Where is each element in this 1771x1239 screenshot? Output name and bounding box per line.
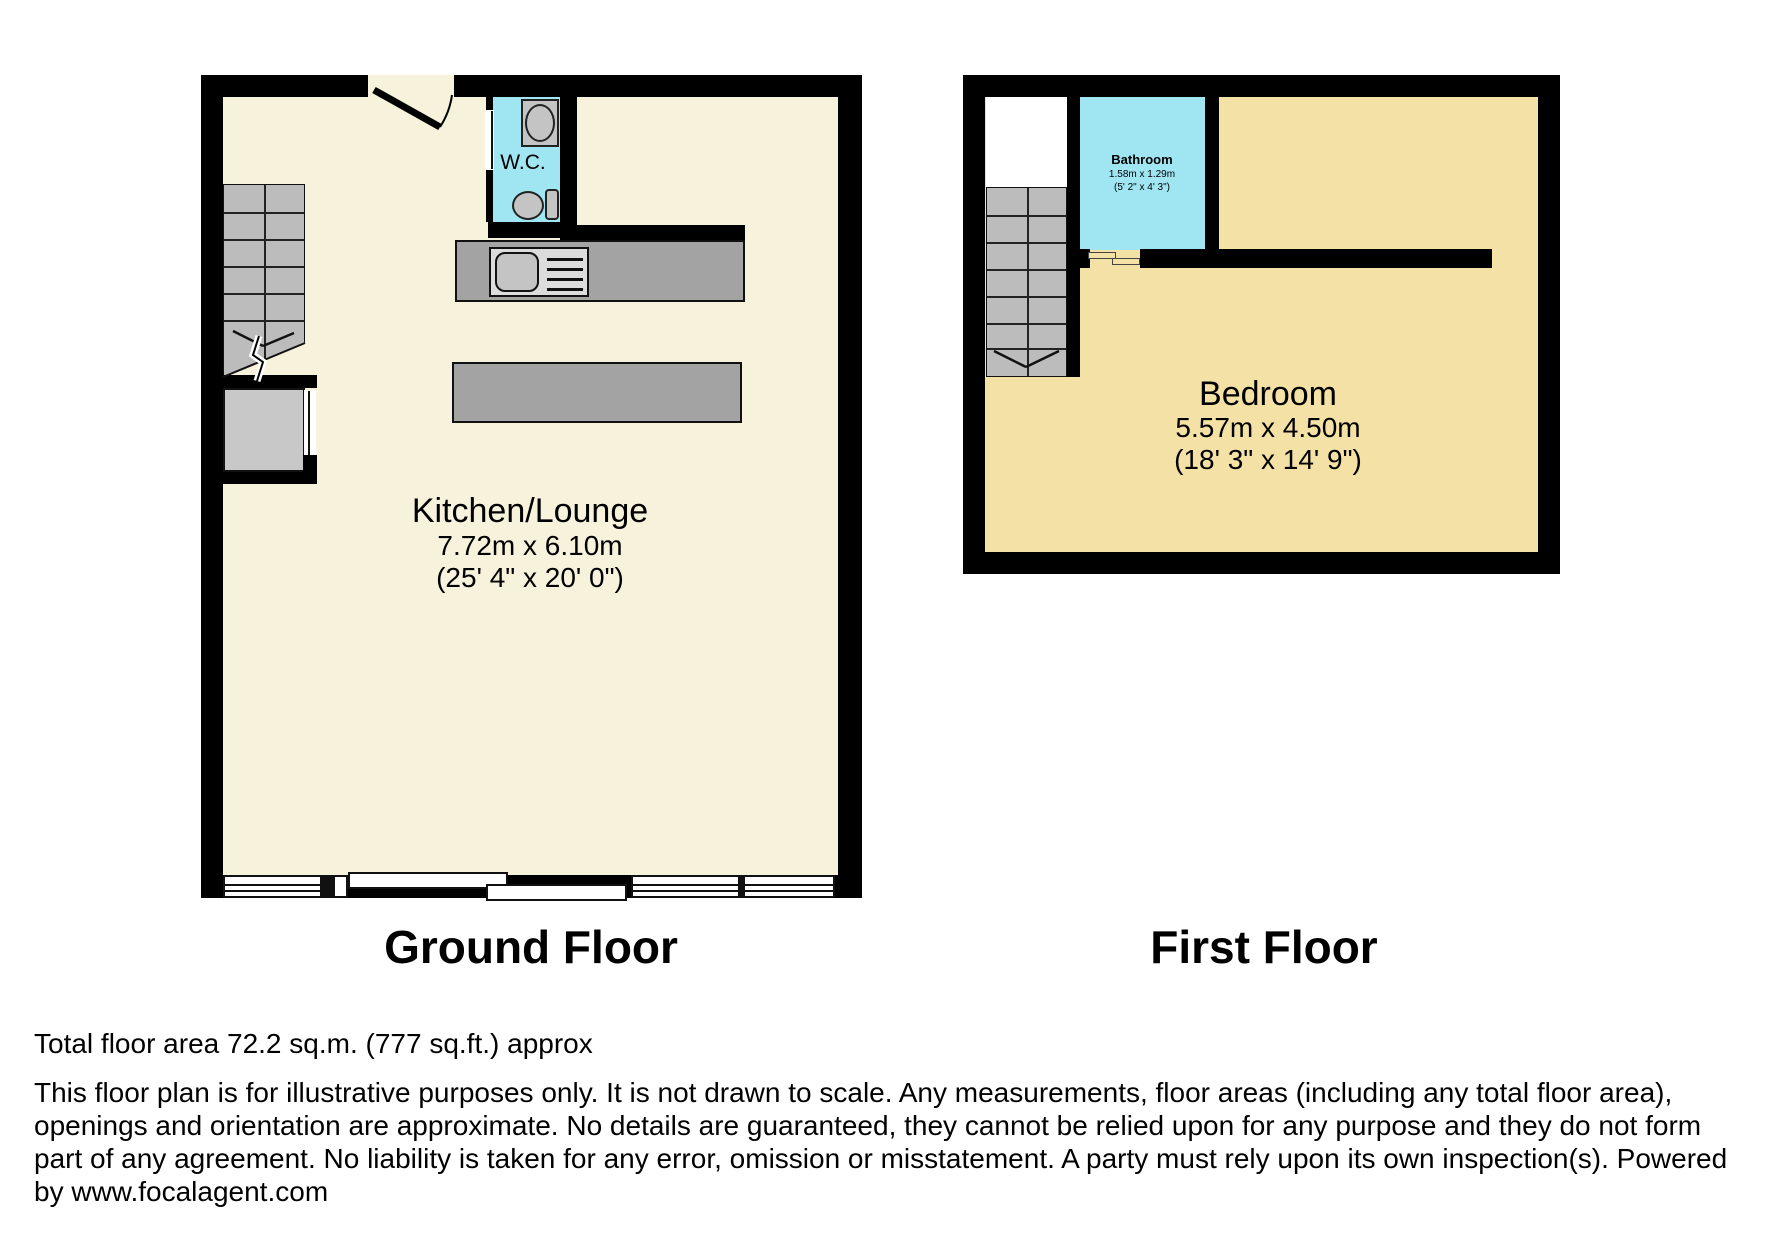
kitchen-wall [577, 225, 745, 240]
stair-divider [264, 185, 266, 376]
ff-interior-wall [1140, 249, 1492, 268]
ff-stair-void [986, 97, 1067, 187]
total-area-text: Total floor area 72.2 sq.m. (777 sq.ft.)… [34, 1028, 1334, 1060]
wc-label: W.C. [483, 151, 563, 175]
window-pane-line [633, 884, 738, 886]
stair-divider [1027, 188, 1029, 376]
drainer-line [547, 258, 583, 261]
wc-toilet-cistern [545, 189, 559, 220]
understairs-wall [223, 375, 317, 388]
bathroom-dims-m: 1.58m x 1.29m [1078, 169, 1206, 180]
window-pane-line [225, 884, 320, 886]
disclaimer-text: This floor plan is for illustrative purp… [34, 1076, 1750, 1208]
window-mullion [322, 875, 333, 898]
bathroom-dims-ft: (5' 2" x 4' 3") [1078, 182, 1206, 193]
room-label-kitchen-lounge: Kitchen/Lounge [330, 492, 730, 531]
bathroom-right-wall [1205, 97, 1219, 268]
floorplan-page: W.C. [0, 0, 1771, 1239]
drainer-line [547, 288, 583, 291]
bedroom-dims-ft: (18' 3" x 14' 9") [1068, 444, 1468, 476]
window-pane-line [225, 890, 320, 892]
room-dims-ft: (25' 4" x 20' 0") [330, 562, 730, 594]
room-dims-m: 7.72m x 6.10m [330, 530, 730, 562]
window [223, 875, 322, 898]
window [631, 875, 740, 898]
entrance-door-opening [368, 75, 454, 97]
bathroom-label: Bathroom [1078, 152, 1206, 167]
drainer-line [547, 268, 583, 271]
window-pane-line [745, 884, 833, 886]
cupboard-bottom-wall [223, 472, 317, 484]
wc-toilet-bowl [512, 191, 544, 220]
wc-basin-bowl [525, 104, 555, 142]
window [743, 875, 835, 898]
bathroom-door-sill [1112, 258, 1140, 265]
room-label-bedroom: Bedroom [1068, 375, 1468, 414]
window-pane-line [633, 890, 738, 892]
window [333, 875, 348, 898]
kitchen-sink-bowl [495, 252, 539, 292]
kitchen-island [452, 362, 742, 423]
ff-title: First Floor [1014, 920, 1514, 974]
gf-cupboard [223, 388, 305, 472]
bedroom-dims-m: 5.57m x 4.50m [1068, 412, 1468, 444]
patio-door-panel [486, 884, 627, 901]
drainer-line [547, 278, 583, 281]
gf-title: Ground Floor [281, 920, 781, 974]
wc-bottom-wall [488, 222, 577, 238]
patio-door-panel [348, 872, 508, 889]
window-pane-line [745, 890, 833, 892]
ff-stairs [986, 187, 1067, 377]
ff-stair-wall [1067, 97, 1080, 377]
